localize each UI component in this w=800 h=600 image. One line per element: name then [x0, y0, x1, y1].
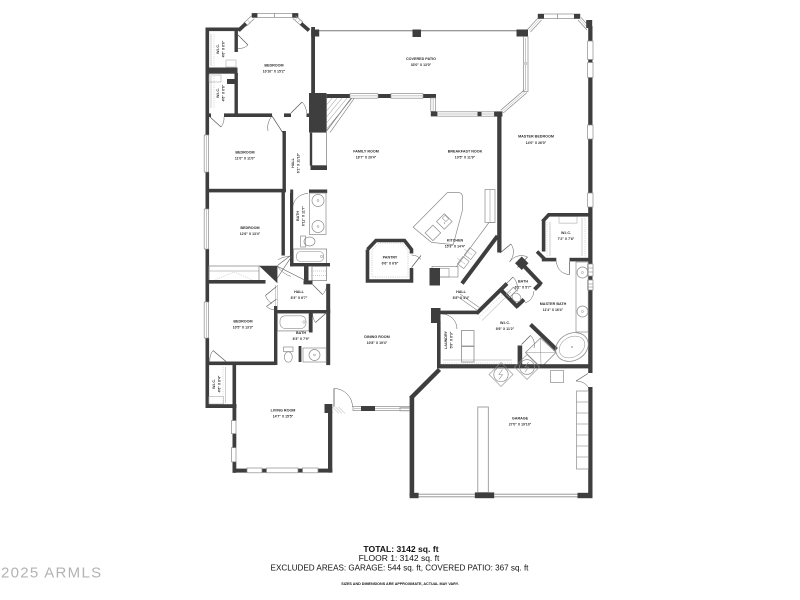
svg-text:BATH: BATH [296, 211, 300, 221]
svg-text:6'6" X 6'6": 6'6" X 6'6" [382, 262, 399, 266]
svg-text:HALL: HALL [294, 290, 305, 294]
svg-text:8'8" X 4'4": 8'8" X 4'4" [453, 296, 470, 300]
svg-text:8'6" X 11'2": 8'6" X 11'2" [496, 327, 515, 331]
svg-text:4'6" X 6'6": 4'6" X 6'6" [222, 40, 226, 57]
svg-text:BEDROOM: BEDROOM [264, 64, 283, 68]
svg-text:FLOOR 1: 3142 sq. ft: FLOOR 1: 3142 sq. ft [359, 553, 440, 563]
svg-text:4'6" X 8'4": 4'6" X 8'4" [218, 375, 222, 392]
svg-text:10'8" X 19'4": 10'8" X 19'4" [367, 341, 388, 345]
svg-text:BEDROOM: BEDROOM [233, 320, 252, 324]
svg-text:7'2" X 7'8": 7'2" X 7'8" [558, 237, 575, 241]
svg-text:BEDROOM: BEDROOM [235, 151, 254, 155]
svg-text:BATH: BATH [518, 280, 528, 284]
svg-text:GARAGE: GARAGE [512, 417, 529, 421]
svg-text:10'5" X 11'9": 10'5" X 11'9" [455, 156, 476, 160]
svg-text:COVERED PATIO: COVERED PATIO [406, 57, 436, 61]
svg-text:W.I.C.: W.I.C. [216, 88, 220, 98]
svg-text:6'11" X 11'7": 6'11" X 11'7" [302, 206, 306, 227]
svg-text:PANTRY: PANTRY [383, 256, 398, 260]
svg-text:5'9" X 6'3": 5'9" X 6'3" [450, 331, 454, 348]
svg-text:14'7" X 15'5": 14'7" X 15'5" [273, 415, 294, 419]
svg-text:BATH: BATH [296, 331, 306, 335]
svg-text:W.I.C.: W.I.C. [561, 231, 571, 235]
svg-text:33'0" X 13'0": 33'0" X 13'0" [411, 63, 432, 67]
svg-text:SIZES AND DIMENSIONS ARE APPRO: SIZES AND DIMENSIONS ARE APPROXIMATE, AC… [341, 582, 459, 586]
svg-text:18'7" X 20'4": 18'7" X 20'4" [356, 156, 377, 160]
svg-text:MASTER BEDROOM: MASTER BEDROOM [518, 135, 554, 139]
svg-text:14'0" X 26'0": 14'0" X 26'0" [526, 141, 547, 145]
svg-text:27'0" X 19'10": 27'0" X 19'10" [509, 423, 532, 427]
svg-text:W.I.C.: W.I.C. [216, 44, 220, 54]
svg-text:11'0" X 11'0": 11'0" X 11'0" [235, 157, 256, 161]
svg-text:LIVING ROOM: LIVING ROOM [271, 409, 296, 413]
svg-text:6'1" X 5'7": 6'1" X 5'7" [515, 286, 532, 290]
svg-text:EXCLUDED AREAS: GARAGE: 544 sq: EXCLUDED AREAS: GARAGE: 544 sq. ft, COVE… [271, 564, 530, 573]
svg-text:KITCHEN: KITCHEN [447, 239, 464, 243]
svg-text:MASTER BATH: MASTER BATH [540, 302, 567, 306]
svg-text:6'1" X 11'10": 6'1" X 11'10" [297, 152, 301, 173]
svg-text:FAMILY ROOM: FAMILY ROOM [353, 150, 379, 154]
svg-text:11'4" X 16'4": 11'4" X 16'4" [543, 308, 564, 312]
svg-text:HALL: HALL [456, 290, 467, 294]
svg-text:8'3" X 6'7": 8'3" X 6'7" [291, 296, 308, 300]
svg-text:2025 ARMLS: 2025 ARMLS [1, 565, 102, 582]
svg-text:12'6" X 13'4": 12'6" X 13'4" [240, 232, 261, 236]
svg-text:W.I.C.: W.I.C. [212, 379, 216, 389]
svg-text:LAUNDRY: LAUNDRY [444, 331, 448, 349]
svg-text:10'10" X 15'2": 10'10" X 15'2" [263, 70, 286, 74]
svg-text:DINING ROOM: DINING ROOM [364, 335, 389, 339]
svg-text:HALL: HALL [291, 157, 295, 168]
svg-text:15'3" X 14'4": 15'3" X 14'4" [445, 245, 466, 249]
svg-text:BREAKFAST NOOK: BREAKFAST NOOK [448, 150, 483, 154]
svg-text:8'3" X 7'9": 8'3" X 7'9" [293, 337, 310, 341]
svg-text:4'6" X 6'6": 4'6" X 6'6" [222, 84, 226, 101]
svg-text:BEDROOM: BEDROOM [240, 226, 259, 230]
svg-text:W.I.C.: W.I.C. [500, 321, 510, 325]
svg-text:10'5" X 13'3": 10'5" X 13'3" [233, 326, 254, 330]
